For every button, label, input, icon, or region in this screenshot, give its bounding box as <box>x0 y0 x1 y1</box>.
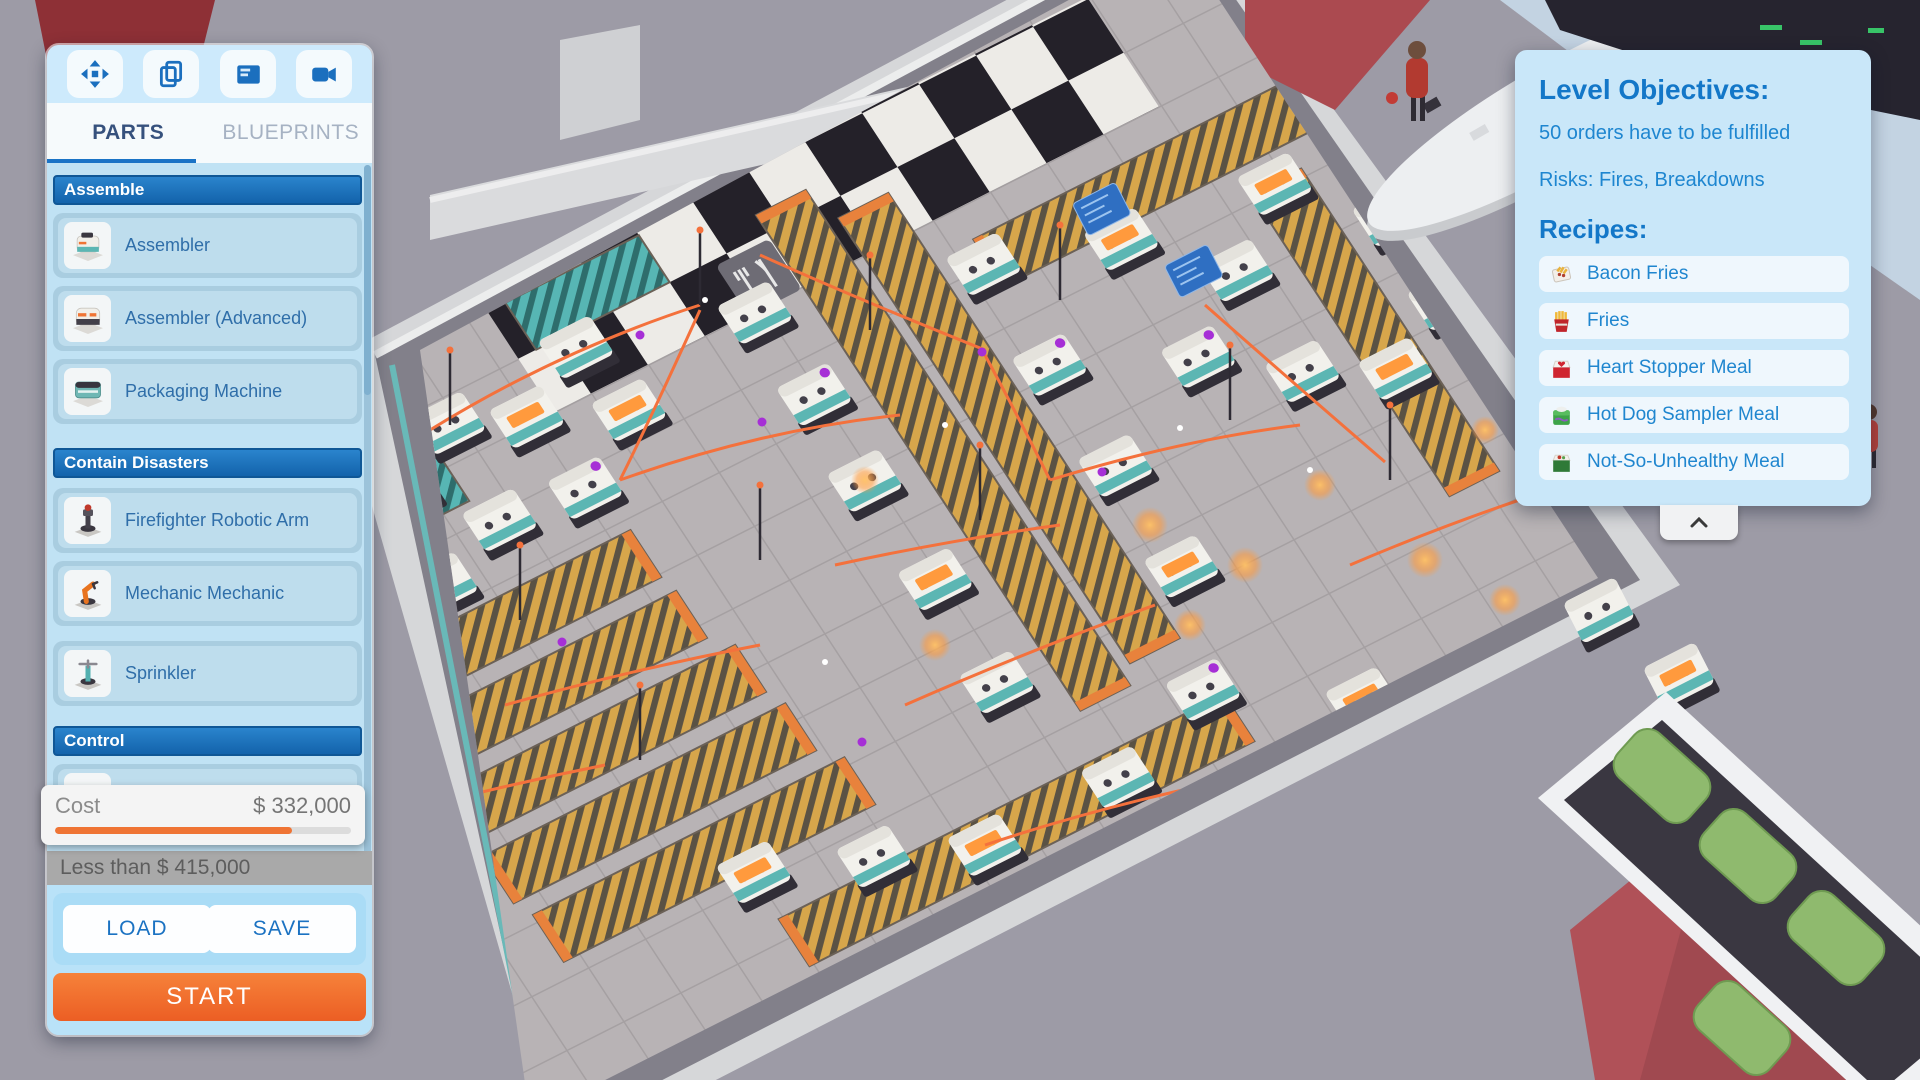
risks-line: Risks: Fires, Breakdowns <box>1539 169 1849 192</box>
bacon-fries-icon <box>1548 261 1575 288</box>
cost-progress-fill <box>55 827 292 834</box>
load-button[interactable]: LOAD <box>63 905 211 953</box>
cost-label: Cost <box>55 793 100 819</box>
hot-dog-sampler-meal-icon <box>1548 402 1575 429</box>
chevron-up-icon <box>1688 516 1710 529</box>
part-label: Assembler <box>125 235 210 256</box>
move-tool-icon[interactable] <box>67 50 123 98</box>
objectives-title: Level Objectives: <box>1539 74 1849 106</box>
notes-tool-icon[interactable] <box>220 50 276 98</box>
section-header-control: Control <box>53 726 362 756</box>
tab-blueprints[interactable]: BLUEPRINTS <box>210 103 373 163</box>
order-goal: 50 orders have to be fulfilled <box>1539 122 1849 145</box>
parts-scrollbar[interactable] <box>364 165 371 855</box>
heart-stopper-meal-icon <box>1548 355 1575 382</box>
sprinkler-icon <box>64 650 111 697</box>
recipe-hot-dog-sampler: Hot Dog Sampler Meal <box>1539 397 1849 433</box>
budget-limit: Less than $ 415,000 <box>47 851 372 885</box>
recipes-title: Recipes: <box>1539 214 1849 245</box>
recipe-label: Hot Dog Sampler Meal <box>1587 404 1779 426</box>
packaging-machine-icon <box>64 368 111 415</box>
save-button[interactable]: SAVE <box>208 905 356 953</box>
recipe-label: Not-So-Unhealthy Meal <box>1587 451 1784 473</box>
section-header-contain-disasters: Contain Disasters <box>53 448 362 478</box>
assembler-advanced-icon <box>64 295 111 342</box>
part-label: Firefighter Robotic Arm <box>125 510 309 531</box>
recipe-label: Bacon Fries <box>1587 263 1688 285</box>
cost-tooltip: Cost $ 332,000 <box>41 785 365 845</box>
part-item-mechanic-mechanic[interactable]: Mechanic Mechanic <box>53 561 362 626</box>
fries-icon <box>1548 308 1575 335</box>
cost-progress-track <box>55 827 351 834</box>
camera-tool-icon[interactable] <box>296 50 352 98</box>
loadsave-group: LOAD SAVE <box>53 893 366 965</box>
collapse-objectives-button[interactable] <box>1660 505 1738 540</box>
tab-parts[interactable]: PARTS <box>47 103 210 163</box>
section-header-assemble: Assemble <box>53 175 362 205</box>
cost-value: $ 332,000 <box>253 793 351 819</box>
part-label: Assembler (Advanced) <box>125 308 307 329</box>
recipe-label: Heart Stopper Meal <box>1587 357 1752 379</box>
recipe-not-so-unhealthy: Not-So-Unhealthy Meal <box>1539 444 1849 480</box>
panel-tabs: PARTS BLUEPRINTS <box>47 103 372 163</box>
part-item-firefighter-arm[interactable]: Firefighter Robotic Arm <box>53 488 362 553</box>
part-item-assembler[interactable]: Assembler <box>53 213 362 278</box>
assembler-icon <box>64 222 111 269</box>
part-label: Mechanic Mechanic <box>125 583 284 604</box>
part-label: Packaging Machine <box>125 381 282 402</box>
panel-toolbar <box>47 45 372 103</box>
not-so-unhealthy-meal-icon <box>1548 449 1575 476</box>
build-panel: PARTS BLUEPRINTS Assemble Assembler <box>47 45 372 1035</box>
mechanic-arm-icon <box>64 570 111 617</box>
recipe-fries: Fries <box>1539 303 1849 339</box>
start-button[interactable]: START <box>53 973 366 1021</box>
part-label: Sprinkler <box>125 663 196 684</box>
firefighter-arm-icon <box>64 497 111 544</box>
part-item-sprinkler[interactable]: Sprinkler <box>53 641 362 706</box>
part-item-packaging-machine[interactable]: Packaging Machine <box>53 359 362 424</box>
recipe-heart-stopper: Heart Stopper Meal <box>1539 350 1849 386</box>
recipe-bacon-fries: Bacon Fries <box>1539 256 1849 292</box>
part-item-assembler-advanced[interactable]: Assembler (Advanced) <box>53 286 362 351</box>
recipe-label: Fries <box>1587 310 1629 332</box>
objectives-panel: Level Objectives: 50 orders have to be f… <box>1515 50 1871 506</box>
copy-tool-icon[interactable] <box>143 50 199 98</box>
panel-footer: LOAD SAVE START <box>47 885 372 1035</box>
